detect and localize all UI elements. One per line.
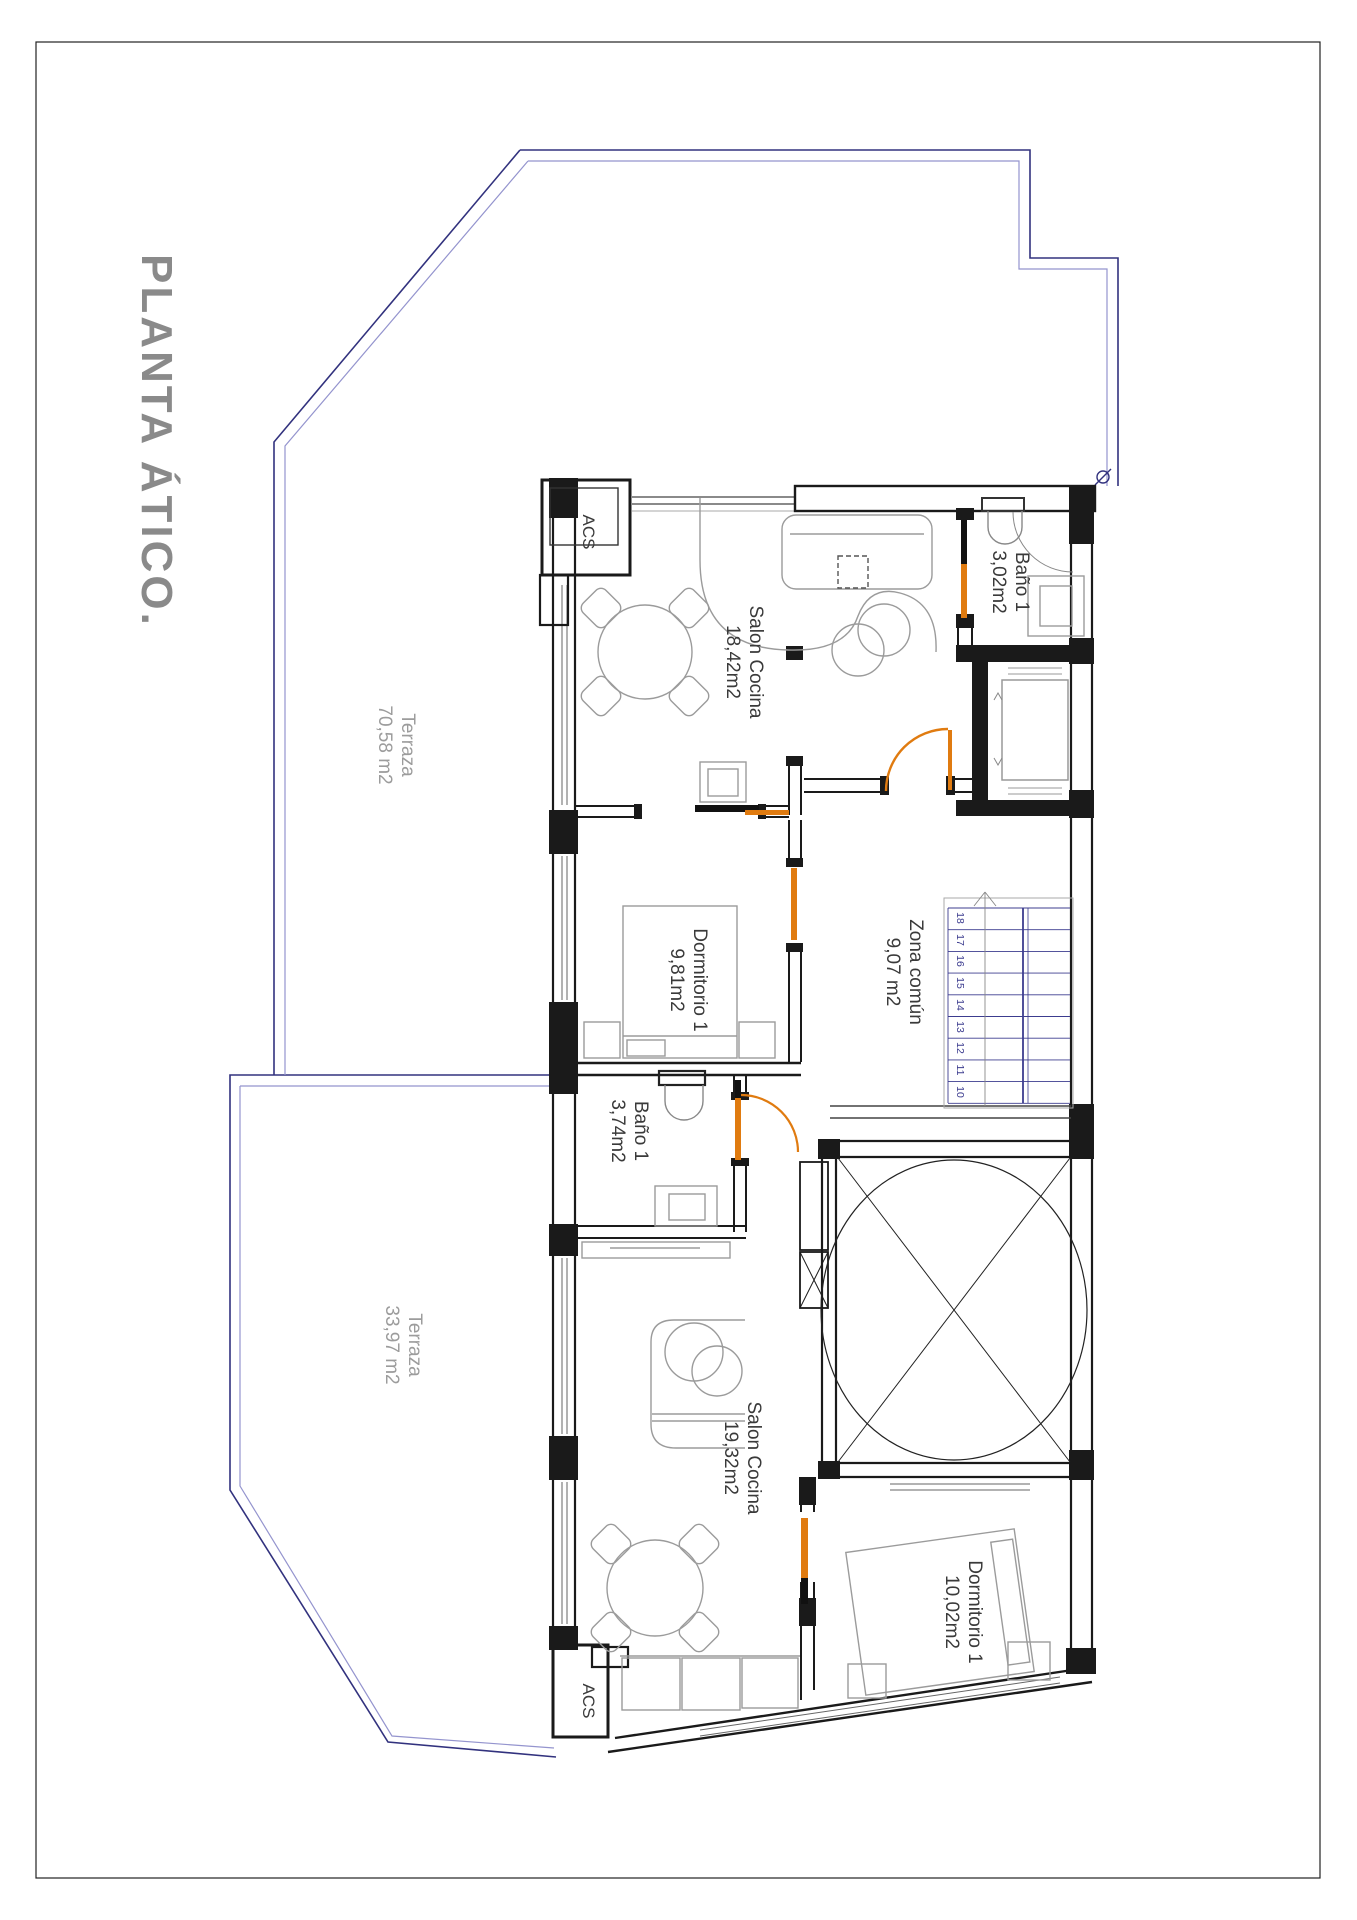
label-zona-comun-name: Zona común <box>905 919 926 1025</box>
shower-a <box>1028 576 1084 636</box>
step-12: 12 <box>954 1042 966 1054</box>
step-13: 13 <box>954 1021 966 1033</box>
patio-void <box>821 1158 1087 1462</box>
sink-b <box>655 1186 717 1226</box>
kitchen-cabinets-b <box>620 1656 800 1710</box>
toilet-b <box>659 1071 705 1120</box>
label-terraza-a-area: 70,58 m2 <box>374 705 395 784</box>
sofa-a <box>782 515 932 589</box>
label-bano-b-area: 3,74m2 <box>607 1099 628 1162</box>
interior-walls <box>575 508 1094 1700</box>
duct-shaft <box>800 1162 828 1308</box>
label-acs-top: ACS <box>579 515 598 550</box>
entry-door-zona-comun <box>886 729 950 791</box>
stair-step-numbers: 18 17 16 15 14 13 12 11 10 <box>954 912 966 1098</box>
label-salon-b-name: Salon Cocina <box>743 1401 764 1514</box>
label-dorm-b-area: 10,02m2 <box>941 1575 962 1649</box>
label-zona-comun-area: 9,07 m2 <box>882 938 903 1007</box>
door-dorm-a <box>791 868 797 940</box>
label-dorm-a-area: 9,81m2 <box>666 948 687 1011</box>
dining-table-b <box>588 1521 721 1654</box>
labels: PLANTA ÁTICO. Terraza 70,58 m2 Terraza 3… <box>132 254 1032 1718</box>
stair-walkline <box>974 892 996 1106</box>
step-14: 14 <box>954 999 966 1011</box>
label-terraza-b-area: 33,97 m2 <box>381 1305 402 1384</box>
label-salon-a-name: Salon Cocina <box>745 605 766 718</box>
drawing-title: PLANTA ÁTICO. <box>132 254 182 628</box>
label-bano-a-area: 3,02m2 <box>988 550 1009 613</box>
staircase: 18 17 16 15 14 13 12 11 10 <box>944 892 1073 1108</box>
label-bano-a-name: Baño 1 <box>1011 552 1032 612</box>
drawing-sheet: 18 17 16 15 14 13 12 11 10 <box>0 0 1357 1920</box>
bottom-window <box>700 1677 1060 1736</box>
dorm-b-window <box>890 1484 1030 1490</box>
label-acs-bottom: ACS <box>579 1684 598 1719</box>
label-bano-b-name: Baño 1 <box>630 1101 651 1161</box>
label-salon-b-area: 19,32m2 <box>720 1421 741 1495</box>
tv-unit-a <box>838 556 868 588</box>
hall-cupboard <box>700 762 746 802</box>
step-17: 17 <box>954 934 966 946</box>
top-wall <box>795 486 1095 511</box>
elevator <box>994 668 1068 794</box>
counter-below-bano-b <box>582 1242 730 1258</box>
bed-b <box>846 1529 1034 1695</box>
label-salon-a-area: 18,42m2 <box>722 625 743 699</box>
step-10: 10 <box>954 1086 966 1098</box>
label-dorm-a-name: Dormitorio 1 <box>689 928 710 1031</box>
dining-table-a <box>578 585 711 718</box>
step-11: 11 <box>954 1065 966 1076</box>
step-18: 18 <box>954 912 966 924</box>
step-16: 16 <box>954 955 966 967</box>
section-marker <box>1095 469 1111 485</box>
label-terraza-a-name: Terraza <box>397 713 418 777</box>
top-window <box>632 497 795 504</box>
label-dorm-b-name: Dormitorio 1 <box>964 1560 985 1663</box>
plant-a <box>832 604 910 676</box>
label-terraza-b-name: Terraza <box>404 1313 425 1377</box>
door-dorm-b <box>801 1518 808 1604</box>
step-15: 15 <box>954 977 966 989</box>
floor-plan-canvas: 18 17 16 15 14 13 12 11 10 <box>0 0 1357 1920</box>
